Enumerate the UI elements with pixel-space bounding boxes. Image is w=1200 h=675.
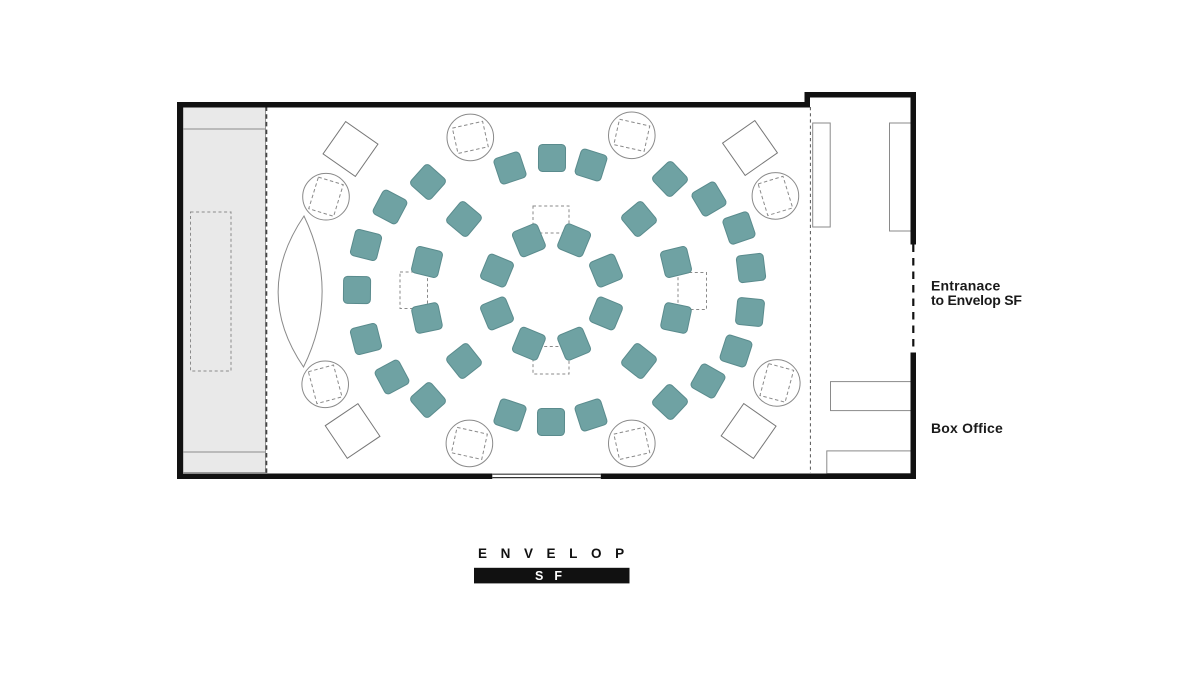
svg-text:Box Office: Box Office [931,420,1003,436]
svg-text:to Envelop SF: to Envelop SF [931,292,1022,308]
svg-text:SF: SF [535,569,573,583]
svg-text:ENVELOP: ENVELOP [478,546,638,561]
